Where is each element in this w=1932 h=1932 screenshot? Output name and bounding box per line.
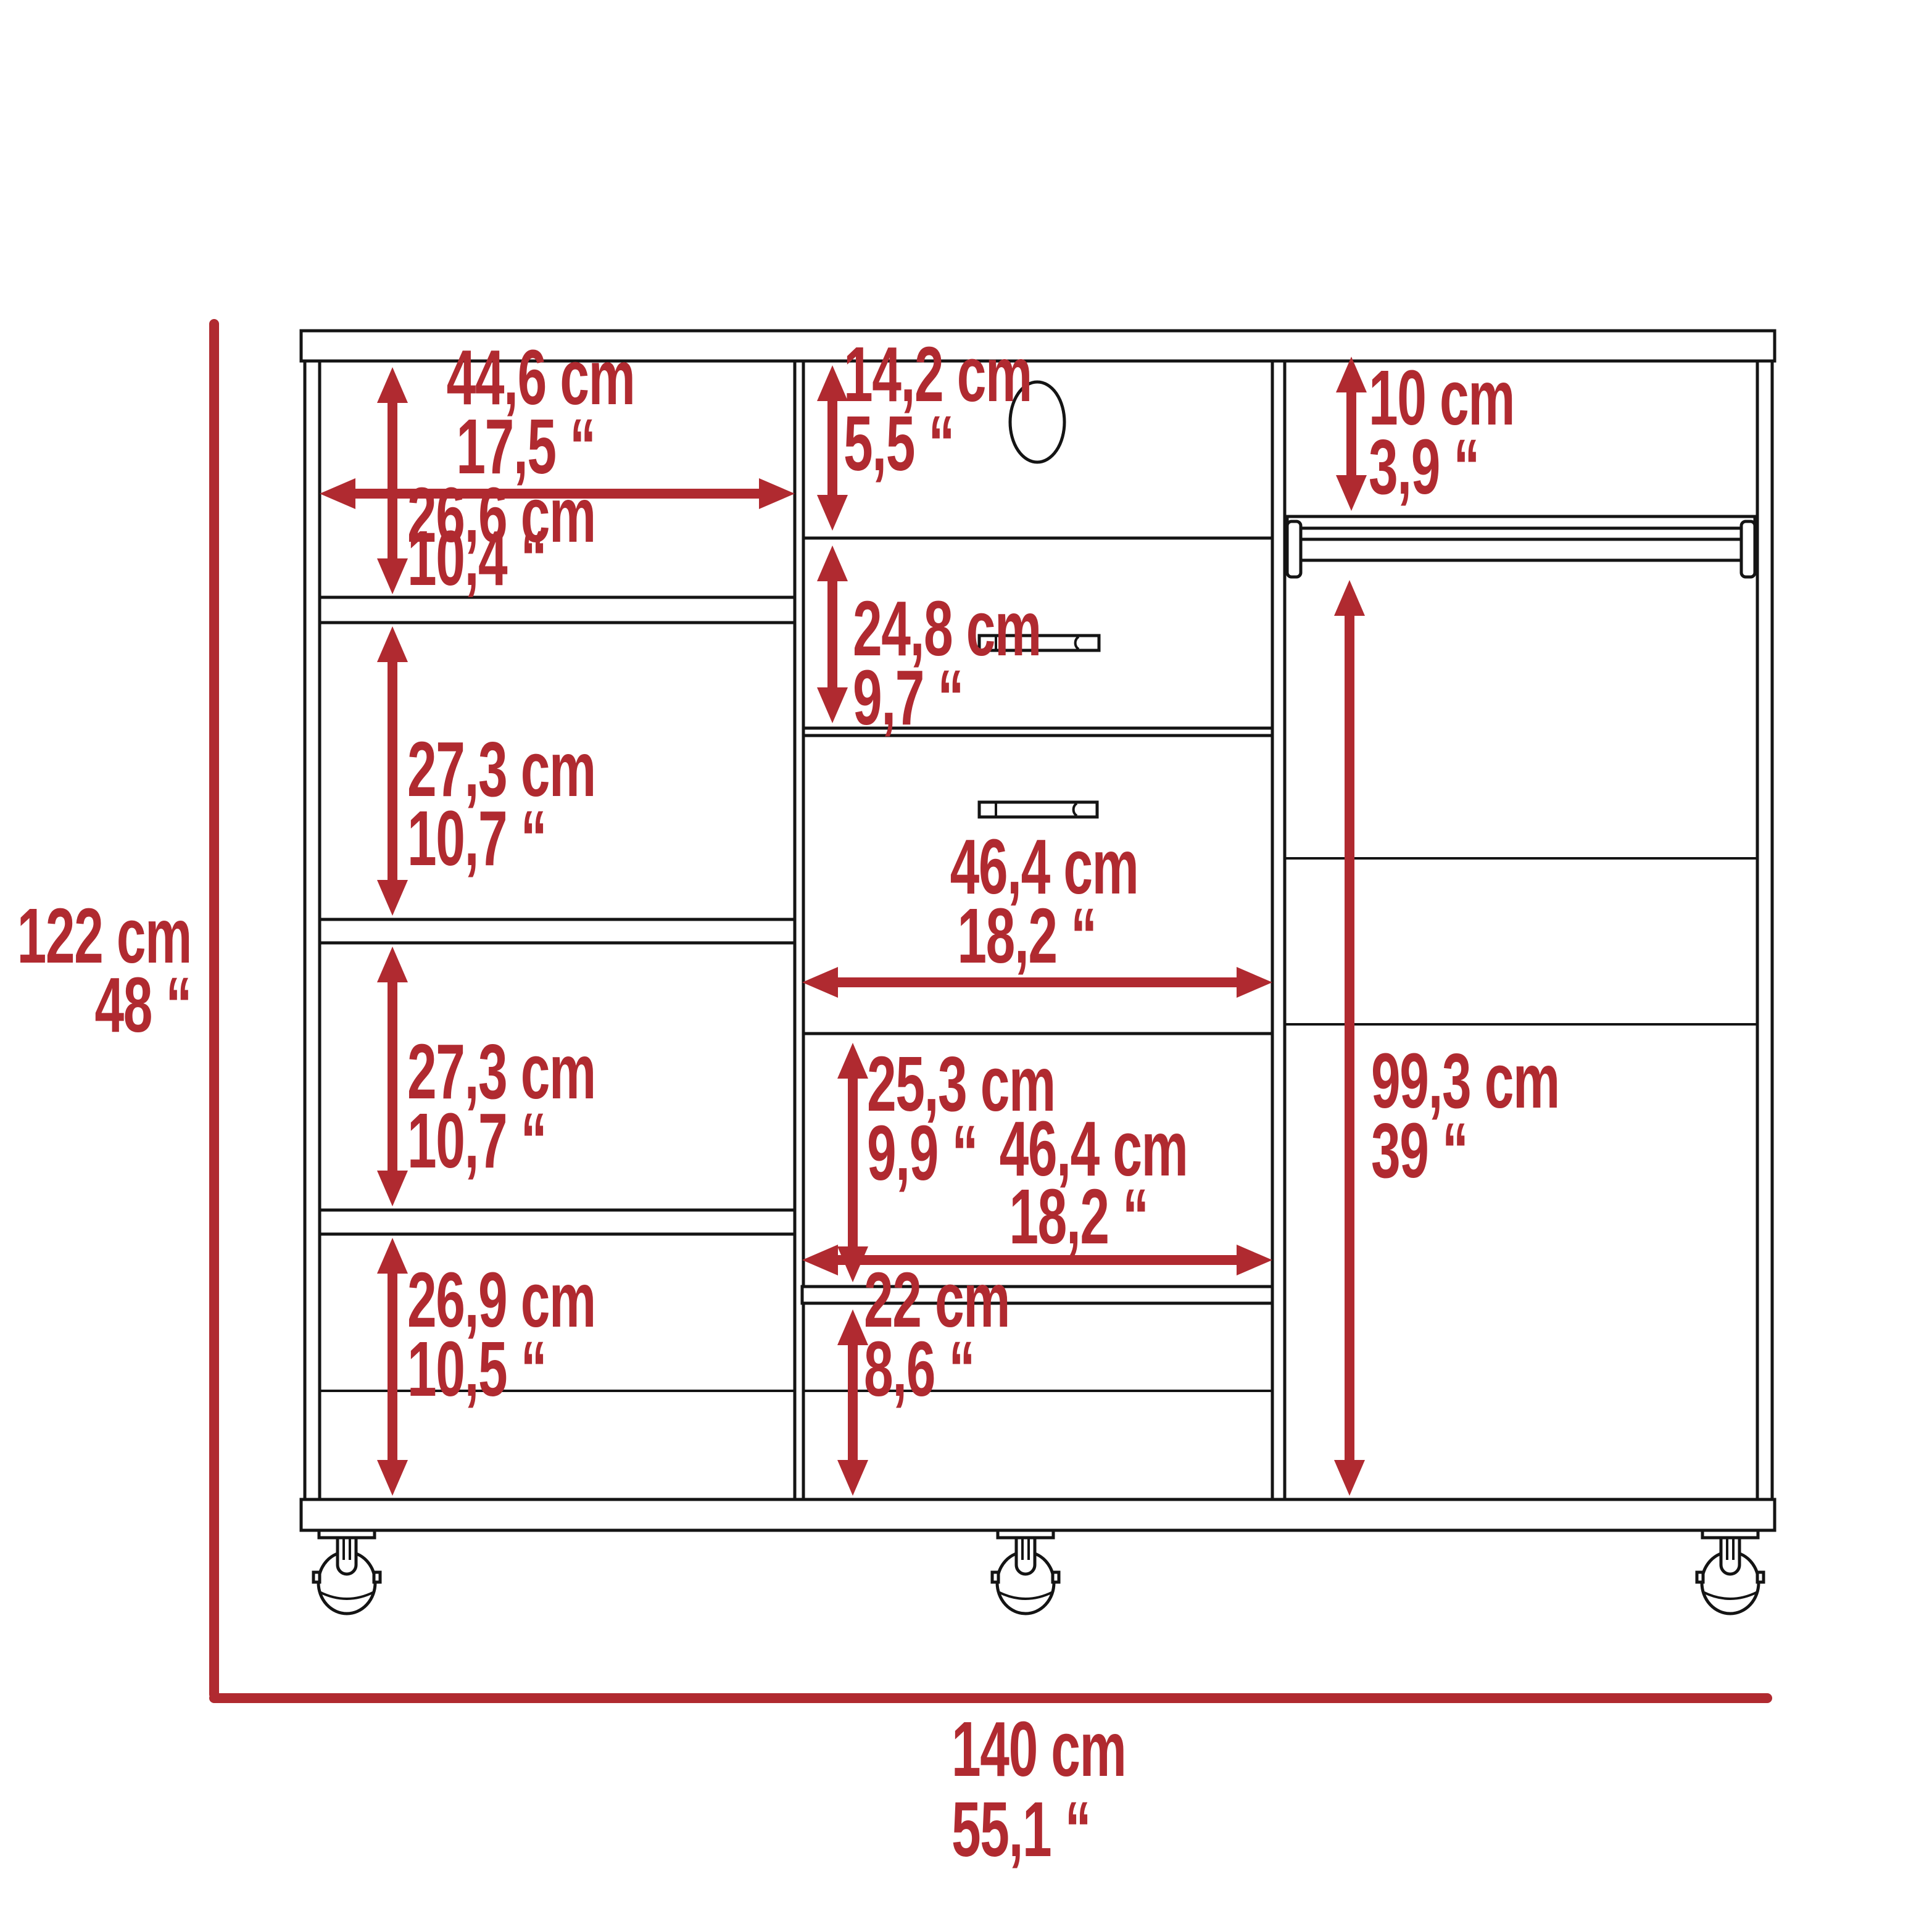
- arrow-shaft: [834, 977, 1240, 987]
- rod-bracket-left: [1287, 521, 1301, 577]
- caster-right: [1697, 1530, 1764, 1614]
- dim-label-overall-width-cm: 140 cm: [951, 1705, 1126, 1793]
- axle-nub-right: [1053, 1572, 1059, 1582]
- arrow-shaft: [388, 1270, 397, 1464]
- dim-label-overall-width-in: 55,1 “: [951, 1785, 1090, 1873]
- arrowhead-up: [817, 545, 848, 581]
- arrowhead-up: [377, 367, 408, 403]
- arrowhead-right: [1237, 1245, 1272, 1275]
- left-shelf-3: [320, 1210, 795, 1234]
- dim-label-in: 9,9 “: [867, 1109, 977, 1196]
- caster-fork: [1016, 1538, 1035, 1574]
- arrowhead-down: [817, 687, 848, 723]
- arrowhead-left: [320, 478, 355, 509]
- arrowhead-down: [1336, 475, 1367, 511]
- dim-label-in: 3,9 “: [1369, 423, 1479, 510]
- arrowhead-right: [759, 478, 795, 509]
- dim-label-in: 10,4 “: [407, 514, 546, 602]
- left-shelf-1: [320, 597, 795, 623]
- arrowhead-up: [377, 626, 408, 662]
- bottom-panel: [301, 1499, 1775, 1530]
- arrowhead-down: [1334, 1460, 1365, 1496]
- axle-nub-left: [1697, 1572, 1703, 1582]
- dim-label-overall-height-in: 48 “: [95, 961, 191, 1048]
- dim-hanging-section-height: 99,3 cm 39 “: [1334, 580, 1559, 1496]
- arrow-shaft: [827, 578, 837, 691]
- rod-rail: [1287, 516, 1755, 528]
- arrow-shaft: [388, 658, 397, 884]
- axle-nub-right: [374, 1572, 380, 1582]
- arrow-shaft: [1346, 389, 1356, 479]
- dim-left-compartment-2: 27,3 cm 10,7 “: [377, 626, 595, 916]
- partition-middle-right: [1272, 361, 1285, 1499]
- hanging-rod: [1301, 539, 1741, 560]
- diagram-canvas: 122 cm 48 “ 140 cm 55,1 “ 44,6 cm 17,5 “…: [0, 0, 1932, 1932]
- arrowhead-left: [802, 1245, 838, 1275]
- dim-left-compartment-4: 26,9 cm 10,5 “: [377, 1238, 595, 1496]
- arrowhead-down: [817, 495, 848, 531]
- dim-left-compartment-3: 27,3 cm 10,7 “: [377, 947, 595, 1206]
- drawer-2-handle: [979, 802, 1097, 817]
- left-side-panel: [305, 361, 320, 1499]
- overall-width-line: [209, 1693, 1772, 1703]
- arrowhead-down: [377, 880, 408, 916]
- furniture-dimension-diagram: 122 cm 48 “ 140 cm 55,1 “ 44,6 cm 17,5 “…: [0, 0, 1932, 1932]
- caster-left: [313, 1530, 380, 1614]
- dim-drawer-front-height: 24,8 cm 9,7 “: [817, 545, 1041, 741]
- arrowhead-down: [377, 1460, 408, 1496]
- left-shelf-2: [320, 919, 795, 943]
- arrow-shaft: [827, 397, 837, 499]
- arrow-shaft: [848, 1075, 858, 1250]
- arrow-shaft: [388, 979, 397, 1174]
- axle-nub-left: [313, 1572, 320, 1582]
- dim-label-in: 10,7 “: [407, 794, 546, 882]
- dim-label-in: 10,7 “: [407, 1097, 546, 1184]
- arrowhead-right: [1237, 967, 1272, 998]
- axle-nub-left: [992, 1572, 998, 1582]
- dim-label-in: 8,6 “: [864, 1325, 974, 1412]
- arrowhead-down: [377, 1171, 408, 1206]
- arrowhead-up: [377, 1238, 408, 1274]
- dim-label-in: 9,7 “: [853, 653, 963, 741]
- rod-bracket-right: [1741, 521, 1755, 577]
- hanging-rod-assembly: [1287, 516, 1755, 577]
- arrowhead-down: [837, 1460, 868, 1496]
- axle-nub-right: [1757, 1572, 1764, 1582]
- caster-fork: [1721, 1538, 1739, 1574]
- dim-middle-top-opening: 14,2 cm 5,5 “: [817, 330, 1032, 531]
- dim-label-in: 18,2 “: [957, 892, 1096, 979]
- dim-label-in: 10,5 “: [407, 1325, 546, 1412]
- arrowhead-down: [377, 558, 408, 594]
- dim-label-in: 18,2 “: [1009, 1172, 1148, 1260]
- caster-middle: [992, 1530, 1059, 1614]
- dim-label-in: 39 “: [1371, 1106, 1467, 1194]
- overall-height-line: [209, 319, 219, 1699]
- arrow-shaft: [388, 399, 397, 562]
- arrowhead-up: [1334, 580, 1365, 616]
- caster-fork: [338, 1538, 356, 1574]
- arrow-shaft: [1345, 612, 1354, 1464]
- dim-rod-clearance: 10 cm 3,9 “: [1336, 354, 1514, 511]
- arrowhead-left: [802, 967, 838, 998]
- arrow-shaft: [848, 1341, 858, 1464]
- arrowhead-up: [377, 947, 408, 982]
- dim-drawer-width: 46,4 cm 18,2 “: [802, 823, 1272, 998]
- right-side-panel: [1757, 361, 1772, 1499]
- arrowhead-up: [837, 1043, 868, 1079]
- dim-label-in: 5,5 “: [844, 399, 954, 487]
